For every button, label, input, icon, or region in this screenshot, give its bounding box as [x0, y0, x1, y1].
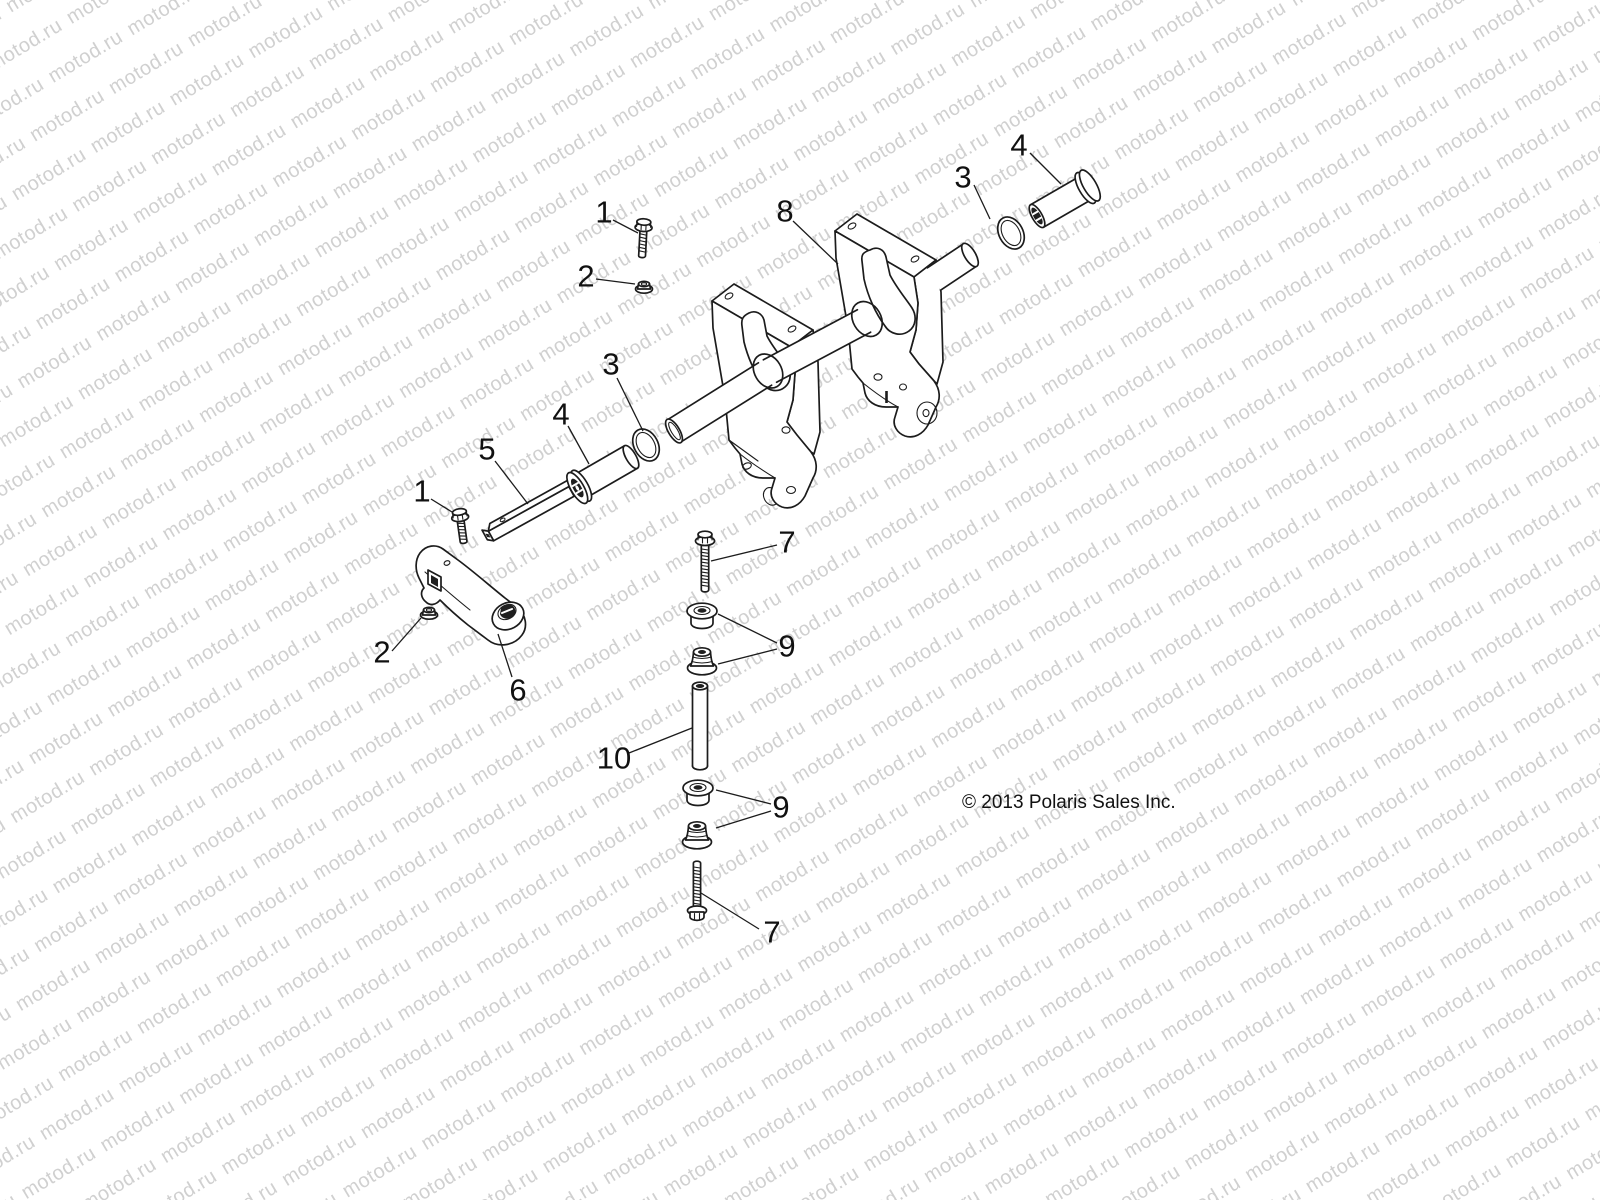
callout-leader-4: [1030, 153, 1061, 184]
callout-label-7: 7: [763, 915, 780, 950]
spacer-tube: [693, 682, 708, 770]
callout-leader-4: [568, 426, 589, 464]
callout-leader-3: [974, 185, 990, 219]
callout-label-10: 10: [597, 741, 631, 776]
grommet-9c: [683, 780, 713, 805]
callout-label-2: 2: [373, 635, 390, 670]
bushing-lower: [563, 439, 644, 506]
callout-leader-2: [392, 618, 421, 651]
callout-leader-9: [718, 614, 777, 643]
callout-label-3: 3: [954, 160, 971, 195]
o-ring-upper: [992, 212, 1029, 253]
callout-label-8: 8: [776, 194, 793, 229]
lever-arm: [416, 546, 529, 645]
callout-label-1: 1: [595, 195, 612, 230]
callout-label-4: 4: [1010, 128, 1027, 163]
callout-leader-10: [629, 728, 692, 753]
torsion-bar: [481, 479, 578, 543]
callout-leader-1: [431, 499, 452, 512]
grommet-9a: [687, 603, 717, 628]
callout-leader-7: [711, 545, 777, 561]
callout-label-9: 9: [778, 629, 795, 664]
bolt-small-left: [451, 508, 473, 545]
parts-diagram-page: motod.rumotod.rumotod.rumotod.rumotod.ru…: [0, 0, 1600, 1200]
grommet-9b: [688, 648, 717, 675]
callout-leader-8: [793, 221, 838, 264]
grommet-9d: [683, 822, 712, 849]
bushing-upper: [1024, 167, 1104, 234]
callout-label-9: 9: [772, 790, 789, 825]
callout-leader-9: [716, 790, 771, 804]
nut-small-upper: [636, 281, 653, 293]
bolt-small-upper: [633, 218, 652, 258]
bolt-long-lower: [688, 861, 707, 920]
callout-label-5: 5: [478, 432, 495, 467]
callout-leader-1: [613, 220, 638, 233]
callout-leader-9: [718, 649, 777, 664]
callout-leader-9: [716, 811, 771, 828]
callout-label-6: 6: [509, 673, 526, 708]
callout-label-7: 7: [778, 525, 795, 560]
callout-leader-7: [701, 893, 759, 929]
callout-leader-5: [495, 461, 528, 504]
bolt-long-upper: [696, 531, 715, 592]
diagram-svg: 12834345126791097: [0, 0, 1600, 1200]
callout-leader-3: [617, 378, 643, 431]
callout-label-2: 2: [577, 259, 594, 294]
callout-leader-2: [596, 279, 635, 284]
callout-label-4: 4: [552, 397, 569, 432]
callout-label-3: 3: [602, 347, 619, 382]
copyright-text: © 2013 Polaris Sales Inc.: [962, 792, 1176, 814]
nut-small-left: [421, 607, 438, 619]
callout-label-1: 1: [413, 474, 430, 509]
